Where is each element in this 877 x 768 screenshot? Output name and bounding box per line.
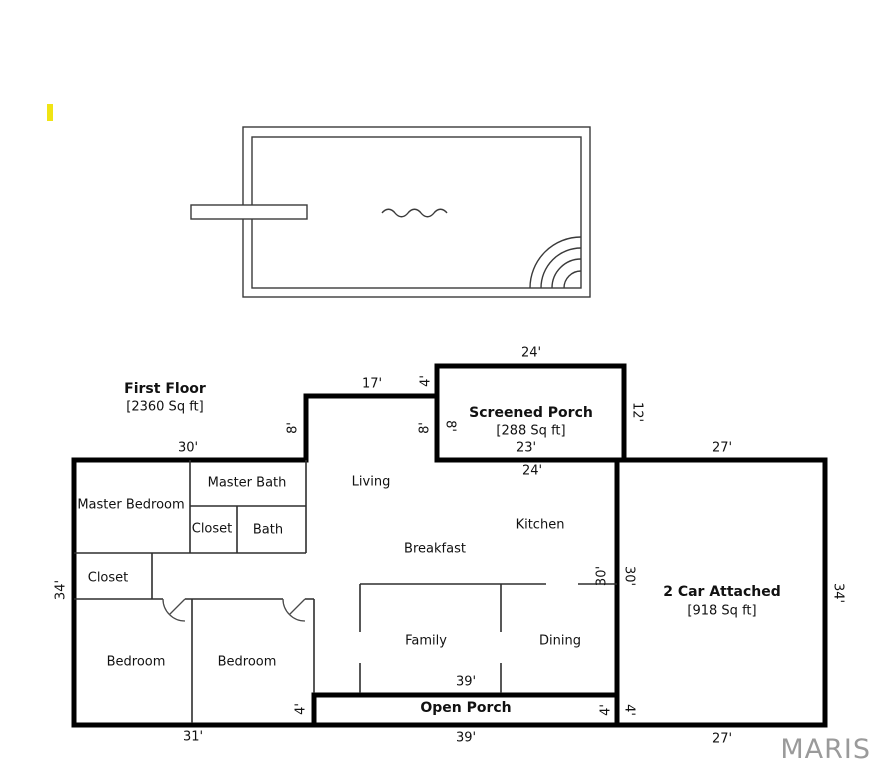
dim-family-width: 39'	[456, 676, 476, 689]
room-master-closet: Closet	[192, 523, 233, 536]
room-master-bath: Master Bath	[208, 477, 287, 490]
dim-living-top: 17'	[362, 378, 382, 391]
bedroom-middle-door-arc	[283, 599, 305, 621]
maris-watermark: MARIS	[780, 736, 871, 763]
dim-garage-bottom: 27'	[712, 733, 732, 746]
dim-open-porch-left: 4'	[295, 703, 308, 715]
floorplan-page: First Floor [2360 Sq ft] Screened Porch …	[0, 0, 877, 768]
pool-diagram	[191, 127, 590, 297]
dim-garage-wall-garage-side: 30'	[623, 566, 636, 586]
room-bath: Bath	[253, 524, 283, 537]
dim-garage-top: 27'	[712, 442, 732, 455]
dim-open-porch-bottom: 39'	[456, 732, 476, 745]
dim-garage-right: 34'	[832, 583, 845, 603]
dim-garage-wall-house-side: 30'	[596, 566, 609, 586]
garage-area: [918 Sq ft]	[687, 605, 756, 618]
room-dining: Dining	[539, 635, 581, 648]
open-porch-title: Open Porch	[420, 701, 511, 715]
screened-porch-title: Screened Porch	[469, 406, 593, 420]
dim-garage-bottom-left: 4'	[623, 704, 636, 716]
door-swing-arcs	[163, 599, 305, 621]
water-waves-icon	[382, 209, 447, 217]
dim-kitchen-top: 24'	[522, 465, 542, 478]
yellow-highlight-mark	[47, 104, 53, 121]
room-hall-closet: Closet	[88, 572, 129, 585]
screened-porch-area: [288 Sq ft]	[496, 425, 565, 438]
dim-living-wall-left: 8'	[287, 422, 300, 434]
garage-title: 2 Car Attached	[663, 585, 781, 599]
room-kitchen: Kitchen	[516, 519, 565, 532]
dim-porch-right: 12'	[631, 402, 644, 422]
room-breakfast: Breakfast	[404, 543, 466, 556]
diving-board	[191, 205, 307, 219]
room-living: Living	[352, 476, 391, 489]
bedroom-left-door-arc	[163, 599, 185, 621]
dim-house-left: 34'	[55, 580, 68, 600]
room-bedroom-left: Bedroom	[107, 656, 166, 669]
dim-porch-top: 24'	[521, 347, 541, 360]
room-family: Family	[405, 635, 447, 648]
dim-porch-inner-width: 23'	[516, 442, 536, 455]
room-master-bedroom: Master Bedroom	[77, 499, 184, 512]
dim-open-porch-right: 4'	[600, 704, 613, 716]
first-floor-area: [2360 Sq ft]	[126, 401, 203, 414]
dim-porch-wall-living-side: 8'	[419, 422, 432, 434]
dim-house-bottom-left: 31'	[183, 731, 203, 744]
dim-porch-wall-porch-side: 8'	[444, 420, 457, 432]
pool-steps	[530, 237, 581, 288]
first-floor-title: First Floor	[124, 382, 206, 396]
dim-master-top: 30'	[178, 442, 198, 455]
room-bedroom-middle: Bedroom	[218, 656, 277, 669]
dim-porch-step-left: 4'	[420, 375, 433, 387]
